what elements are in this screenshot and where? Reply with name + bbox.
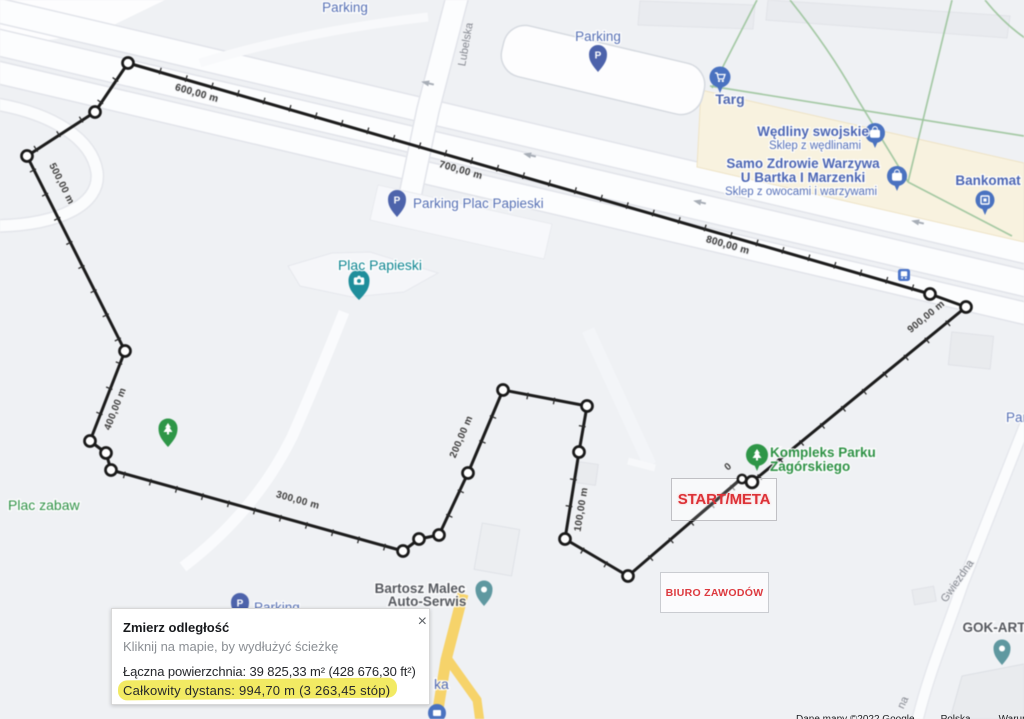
svg-text:Kompleks Parku: Kompleks Parku xyxy=(770,445,876,460)
svg-text:P: P xyxy=(394,196,401,207)
svg-text:Zagórskiego: Zagórskiego xyxy=(770,459,850,474)
svg-text:P: P xyxy=(595,51,602,62)
svg-text:Plac Papieski: Plac Papieski xyxy=(338,257,422,273)
svg-text:Wędliny swojskie: Wędliny swojskie xyxy=(757,124,869,139)
svg-text:Parking: Parking xyxy=(1006,410,1024,425)
svg-text:Bankomat: Bankomat xyxy=(955,173,1021,188)
svg-text:Targ: Targ xyxy=(715,91,744,107)
svg-text:Auto-Serwis: Auto-Serwis xyxy=(388,594,467,609)
svg-text:U Bartka I Marzenki: U Bartka I Marzenki xyxy=(741,170,866,185)
svg-text:Sklep z wędlinami: Sklep z wędlinami xyxy=(769,140,861,152)
svg-text:Samo Zdrowie Warzywa: Samo Zdrowie Warzywa xyxy=(726,156,880,171)
svg-text:Parking: Parking xyxy=(322,0,368,15)
svg-text:Parking: Parking xyxy=(575,29,621,44)
svg-text:GOK-ART: GOK-ART xyxy=(963,620,1024,635)
svg-text:Sklep z owocami i warzywami: Sklep z owocami i warzywami xyxy=(725,186,877,198)
svg-text:ka: ka xyxy=(434,676,449,692)
svg-text:Parking Plac Papieski: Parking Plac Papieski xyxy=(413,196,544,211)
svg-text:Plac zabaw: Plac zabaw xyxy=(8,497,80,513)
